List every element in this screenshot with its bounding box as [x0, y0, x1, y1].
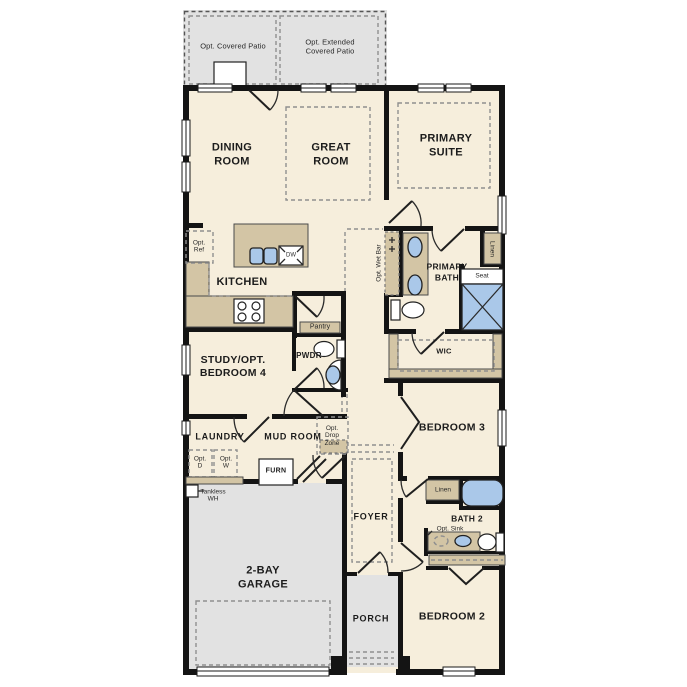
label-furn: FURN	[266, 468, 287, 477]
floor-plan-drawing	[0, 0, 687, 687]
label-pantry: Pantry	[310, 324, 330, 333]
bath2-toilet	[478, 534, 496, 550]
laundry-counter	[186, 477, 243, 484]
label-opt-dryer: Opt. D	[194, 456, 206, 471]
pwdr-sink	[326, 366, 340, 384]
label-bath2: BATH 2	[451, 514, 483, 525]
label-garage: 2-BAY GARAGE	[238, 564, 288, 592]
label-opt-drop-zone: Opt. Drop Zone	[325, 425, 340, 447]
primary-sink-2	[408, 275, 422, 295]
primary-toilet-tank	[391, 300, 400, 320]
label-opt-covered-patio: Opt. Covered Patio	[200, 41, 266, 50]
label-opt-sink: Opt. Sink	[437, 525, 464, 532]
label-pwdr: PWDR	[296, 351, 322, 361]
label-bedroom3: BEDROOM 3	[419, 421, 485, 434]
label-linen-bath2: Linen	[435, 486, 451, 493]
label-great-room: GREAT ROOM	[311, 141, 350, 169]
label-bedroom2: BEDROOM 2	[419, 610, 485, 623]
tankless-water-heater	[186, 485, 198, 497]
label-tankless-wh: Tankless WH	[200, 489, 225, 504]
label-dishwasher: DW	[286, 252, 296, 260]
bath2-toilet-tank	[496, 533, 504, 552]
label-laundry: LAUNDRY	[195, 431, 244, 442]
label-primary-bath: PRIMARY BATH	[427, 261, 468, 282]
label-wic: WIC	[436, 346, 451, 355]
label-linen-primary: Linen	[488, 241, 495, 257]
label-opt-washer: Opt. W	[220, 456, 232, 471]
label-study: STUDY/OPT. BEDROOM 4	[200, 354, 266, 380]
label-kitchen: KITCHEN	[217, 276, 268, 290]
label-opt-extended-patio: Opt. Extended Covered Patio	[305, 38, 354, 57]
primary-toilet	[402, 302, 424, 318]
floor-plan: Opt. Covered Patio Opt. Extended Covered…	[0, 0, 687, 687]
label-primary-suite: PRIMARY SUITE	[420, 132, 472, 160]
label-foyer: FOYER	[353, 511, 388, 522]
label-opt-wet-bar: Opt. Wet Bar	[375, 244, 382, 281]
bathtub	[462, 480, 503, 506]
label-mud-room: MUD ROOM	[264, 431, 321, 442]
label-porch: PORCH	[353, 613, 390, 624]
primary-sink-1	[408, 237, 422, 257]
kitchen-sink-left	[250, 248, 263, 264]
bath2-vanity	[428, 532, 480, 551]
label-dining-room: DINING ROOM	[212, 141, 252, 169]
bath2-sink	[455, 536, 471, 547]
label-opt-ref: Opt. Ref	[193, 240, 205, 255]
pwdr-toilet-tank	[337, 340, 345, 358]
label-seat: Seat	[475, 272, 488, 279]
kitchen-sink-right	[264, 248, 277, 264]
